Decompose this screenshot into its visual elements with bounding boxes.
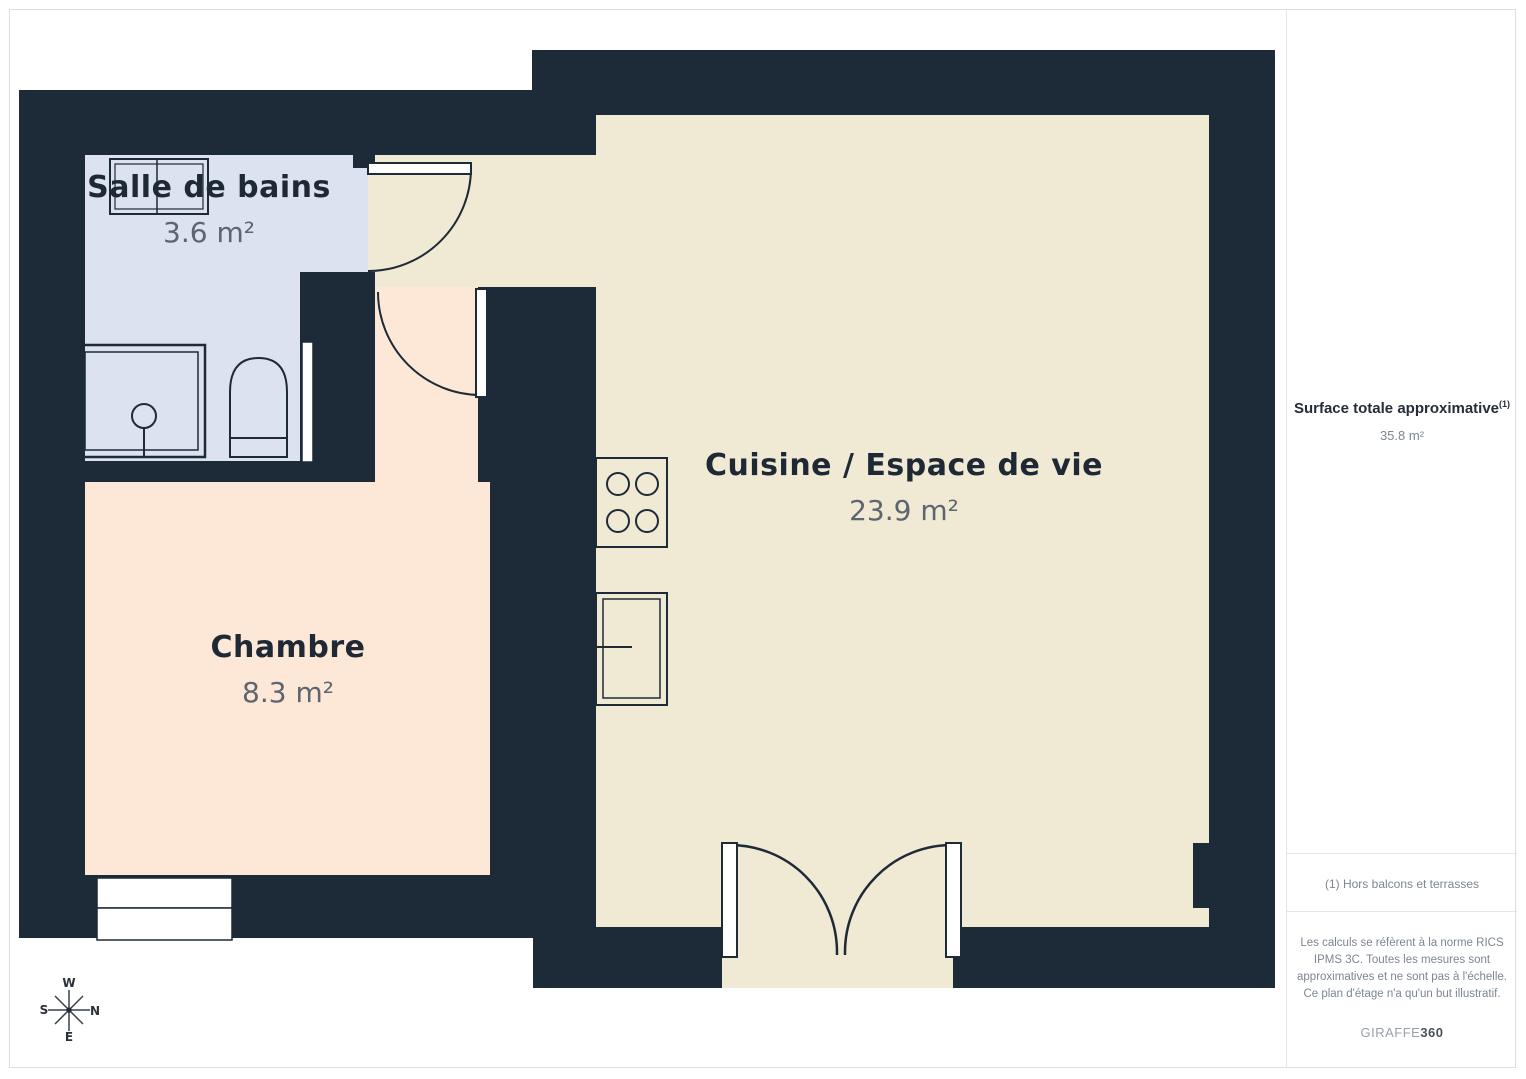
toilet (230, 358, 287, 457)
window (97, 878, 232, 940)
compass-east: E (65, 1030, 73, 1044)
kitchen-name: Cuisine / Espace de vie (705, 449, 1103, 483)
bedroom-area: 8.3 m² (211, 677, 366, 709)
bathroom-label: Salle de bains 3.6 m² (87, 171, 331, 249)
radiator (589, 593, 667, 705)
balcony-threshold (722, 923, 953, 988)
footnote: (1) Hors balcons et terrasses (1287, 877, 1517, 891)
surface-total-block: Surface totale approximative(1) 35.8 m² (1287, 399, 1517, 443)
bedroom-label: Chambre 8.3 m² (211, 631, 366, 709)
sidebar-divider-vertical (1286, 10, 1287, 1068)
bedroom-name: Chambre (211, 631, 366, 665)
sidebar-divider-2 (1287, 911, 1517, 912)
kitchen-area: 23.9 m² (705, 495, 1103, 527)
brand-suffix: 360 (1420, 1025, 1443, 1040)
compass-icon (48, 990, 90, 1031)
wall-pillar (1193, 843, 1209, 908)
compass-west: W (62, 976, 75, 990)
bathroom-name: Salle de bains (87, 171, 331, 205)
legal-text: Les calculs se réfèrent à la norme RICS … (1292, 935, 1512, 1003)
surface-total-title: Surface totale approximative(1) (1287, 399, 1517, 417)
sidebar-divider-1 (1287, 853, 1517, 854)
bathroom-area: 3.6 m² (87, 217, 331, 249)
brand-name: GIRAFFE (1360, 1025, 1420, 1040)
compass-south: S (40, 1003, 49, 1017)
compass-north: N (90, 1004, 100, 1018)
kitchen-label: Cuisine / Espace de vie 23.9 m² (705, 449, 1103, 527)
surface-total-label: Surface totale approximative (1294, 400, 1499, 417)
floorplan-page: Salle de bains 3.6 m² Chambre 8.3 m² Cui… (0, 0, 1526, 1079)
hall-floor (375, 287, 478, 482)
floorplan-canvas (0, 0, 1526, 1079)
surface-total-sup: (1) (1499, 399, 1510, 409)
stove (596, 458, 667, 547)
wall-recess (302, 342, 313, 462)
surface-total-value: 35.8 m² (1287, 428, 1517, 443)
brand-logo: GIRAFFE360 (1287, 1025, 1517, 1040)
